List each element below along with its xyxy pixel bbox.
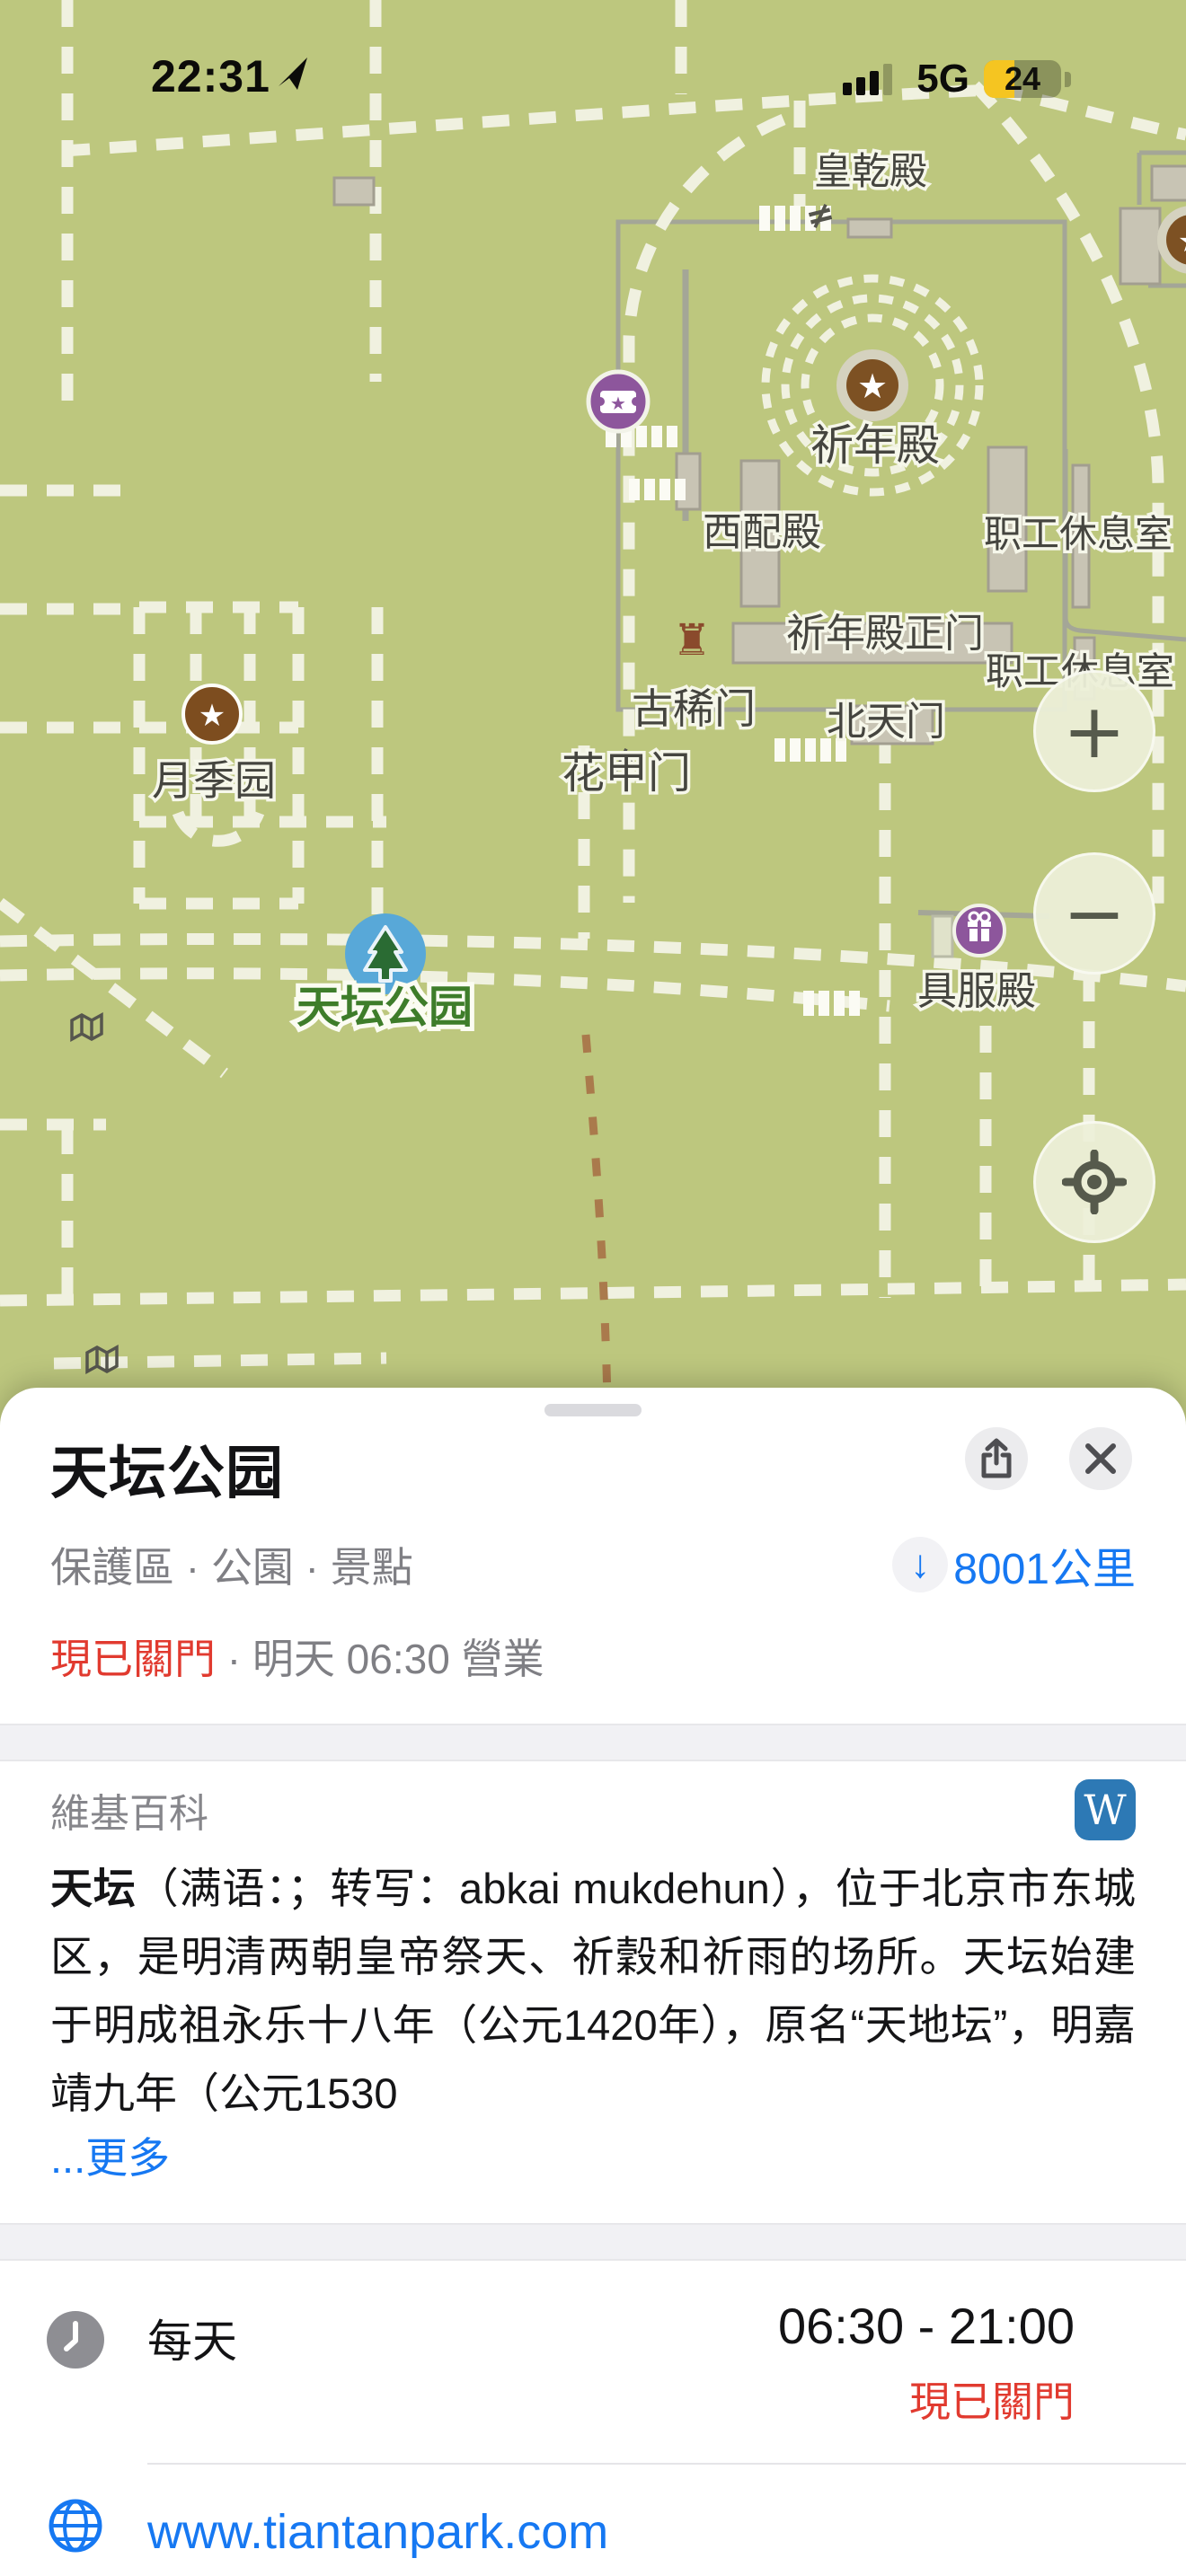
wikipedia-card: 維基百科 W 天坛（满语：；转写：abkai mukdehun），位于北京市东城… <box>0 1761 1186 2223</box>
plus-icon: + <box>1063 687 1126 775</box>
wikipedia-w: W <box>1084 1786 1126 1834</box>
star-icon: ★ <box>199 698 226 734</box>
zoom-out-button[interactable]: − <box>1033 852 1155 975</box>
down-arrow-icon: ↓ <box>910 1542 930 1587</box>
ticket-icon: ★ <box>610 393 626 414</box>
poi-star-marker-rose-garden[interactable]: ★ <box>183 685 241 743</box>
globe-icon <box>47 2497 104 2554</box>
clock-icon <box>47 2311 104 2369</box>
map-canvas[interactable]: ★ ★ ★ ★ <box>0 0 1186 1419</box>
locate-button[interactable] <box>1033 1121 1155 1243</box>
wikipedia-header: 維基百科 <box>50 1781 1075 1839</box>
park-name-label: 天坛公园 <box>296 984 473 1032</box>
more-link[interactable]: ...更多 <box>50 2130 1136 2187</box>
share-icon <box>978 1438 1014 1479</box>
website-row[interactable]: www.tiantanpark.com <box>0 2465 1186 2560</box>
battery-nub <box>1065 72 1071 87</box>
battery-icon: 24 <box>984 60 1061 98</box>
place-card-sheet: 天坛公园 保護區 · 公園 · 景點 ↓ 8001公里 現已關門 · 明天 06… <box>0 1388 1186 2576</box>
iphone-screen: ★ ★ ★ ★ <box>0 0 1186 2576</box>
close-icon <box>1084 1442 1117 1475</box>
poi-star-marker-qiniandian[interactable]: ★ <box>836 349 908 421</box>
castle-icon: ♜ <box>672 615 711 666</box>
map-label: 祈年殿 <box>810 422 940 470</box>
wikipedia-extract: 天坛（满语：；转写：abkai mukdehun），位于北京市东城区，是明清两朝… <box>50 1855 1136 2187</box>
star-icon: ★ <box>857 366 888 406</box>
map-label: 月季园 <box>152 757 276 804</box>
map-label: 花甲门 <box>562 750 691 798</box>
hours-time: 06:30 - 21:00 <box>778 2297 1075 2355</box>
place-category: 保護區 · 公園 · 景點 <box>50 1535 892 1594</box>
star-icon: ★ <box>1178 224 1186 260</box>
status-bar: 22:31 5G 24 <box>0 50 1186 113</box>
place-title: 天坛公园 <box>50 1427 924 1510</box>
sheet-drag-handle[interactable] <box>544 1404 642 1416</box>
map-label: 具服殿 <box>917 969 1036 1013</box>
battery-percent: 24 <box>984 60 1061 98</box>
wikipedia-bold-lead: 天坛 <box>50 1865 137 1912</box>
map-art: ★ ★ ★ ★ <box>0 0 1186 1419</box>
map-label: 皇乾殿 <box>814 150 927 192</box>
distance-value: 8001公里 <box>953 1533 1136 1596</box>
minus-icon: − <box>1063 869 1126 957</box>
map-label: 职工休息室 <box>984 513 1173 555</box>
hours-status: 現已關門 <box>778 2369 1075 2429</box>
map-label: 西配殿 <box>703 510 821 554</box>
close-button[interactable] <box>1069 1427 1132 1490</box>
poi-ticket-marker[interactable]: ★ <box>589 372 648 431</box>
opens-info: · 明天 06:30 營業 <box>216 1636 544 1682</box>
network-type: 5G <box>916 57 969 101</box>
map-label: 祈年殿正门 <box>786 612 984 656</box>
website-link[interactable]: www.tiantanpark.com <box>147 2504 608 2560</box>
share-button[interactable] <box>965 1427 1028 1490</box>
zoom-in-button[interactable]: + <box>1033 670 1155 792</box>
section-separator <box>0 2223 1186 2261</box>
open-status-line: 現已關門 · 明天 06:30 營業 <box>0 1596 1186 1686</box>
signal-bars-icon <box>843 59 902 99</box>
section-separator <box>0 1724 1186 1761</box>
locate-crosshair-icon <box>1062 1150 1127 1214</box>
hours-label: 每天 <box>147 2306 778 2370</box>
map-label: 北天门 <box>827 700 945 744</box>
location-arrow-icon <box>277 56 309 92</box>
hours-row: 每天 06:30 - 21:00 現已關門 <box>0 2261 1186 2429</box>
map-label: 古稀门 <box>632 685 756 732</box>
poi-park-tree-marker[interactable] <box>345 913 426 994</box>
poi-gift-marker[interactable] <box>954 905 1005 956</box>
status-time: 22:31 <box>151 50 270 102</box>
wikipedia-body-text: （满语：；转写：abkai mukdehun），位于北京市东城区，是明清两朝皇帝… <box>50 1865 1136 2117</box>
closed-status: 現已關門 <box>50 1636 216 1682</box>
wikipedia-badge-icon: W <box>1075 1779 1136 1840</box>
distance-badge: ↓ 8001公里 <box>892 1533 1136 1596</box>
